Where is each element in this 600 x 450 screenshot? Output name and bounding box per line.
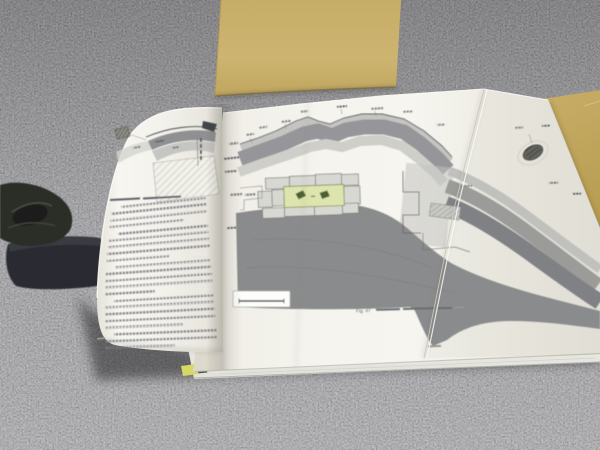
photo-open-book-scene: Photograph: open archaeology report with… (0, 0, 600, 450)
foldout-page: Fig. 47 (193, 89, 600, 372)
foldout-caption-fragment: Fig. 47 (356, 308, 371, 314)
slipcase-box (215, 0, 401, 97)
highlighted-stone-course (284, 184, 345, 207)
scene-canvas: Photograph: open archaeology report with… (0, 0, 600, 450)
gutter-shadow (206, 104, 242, 370)
